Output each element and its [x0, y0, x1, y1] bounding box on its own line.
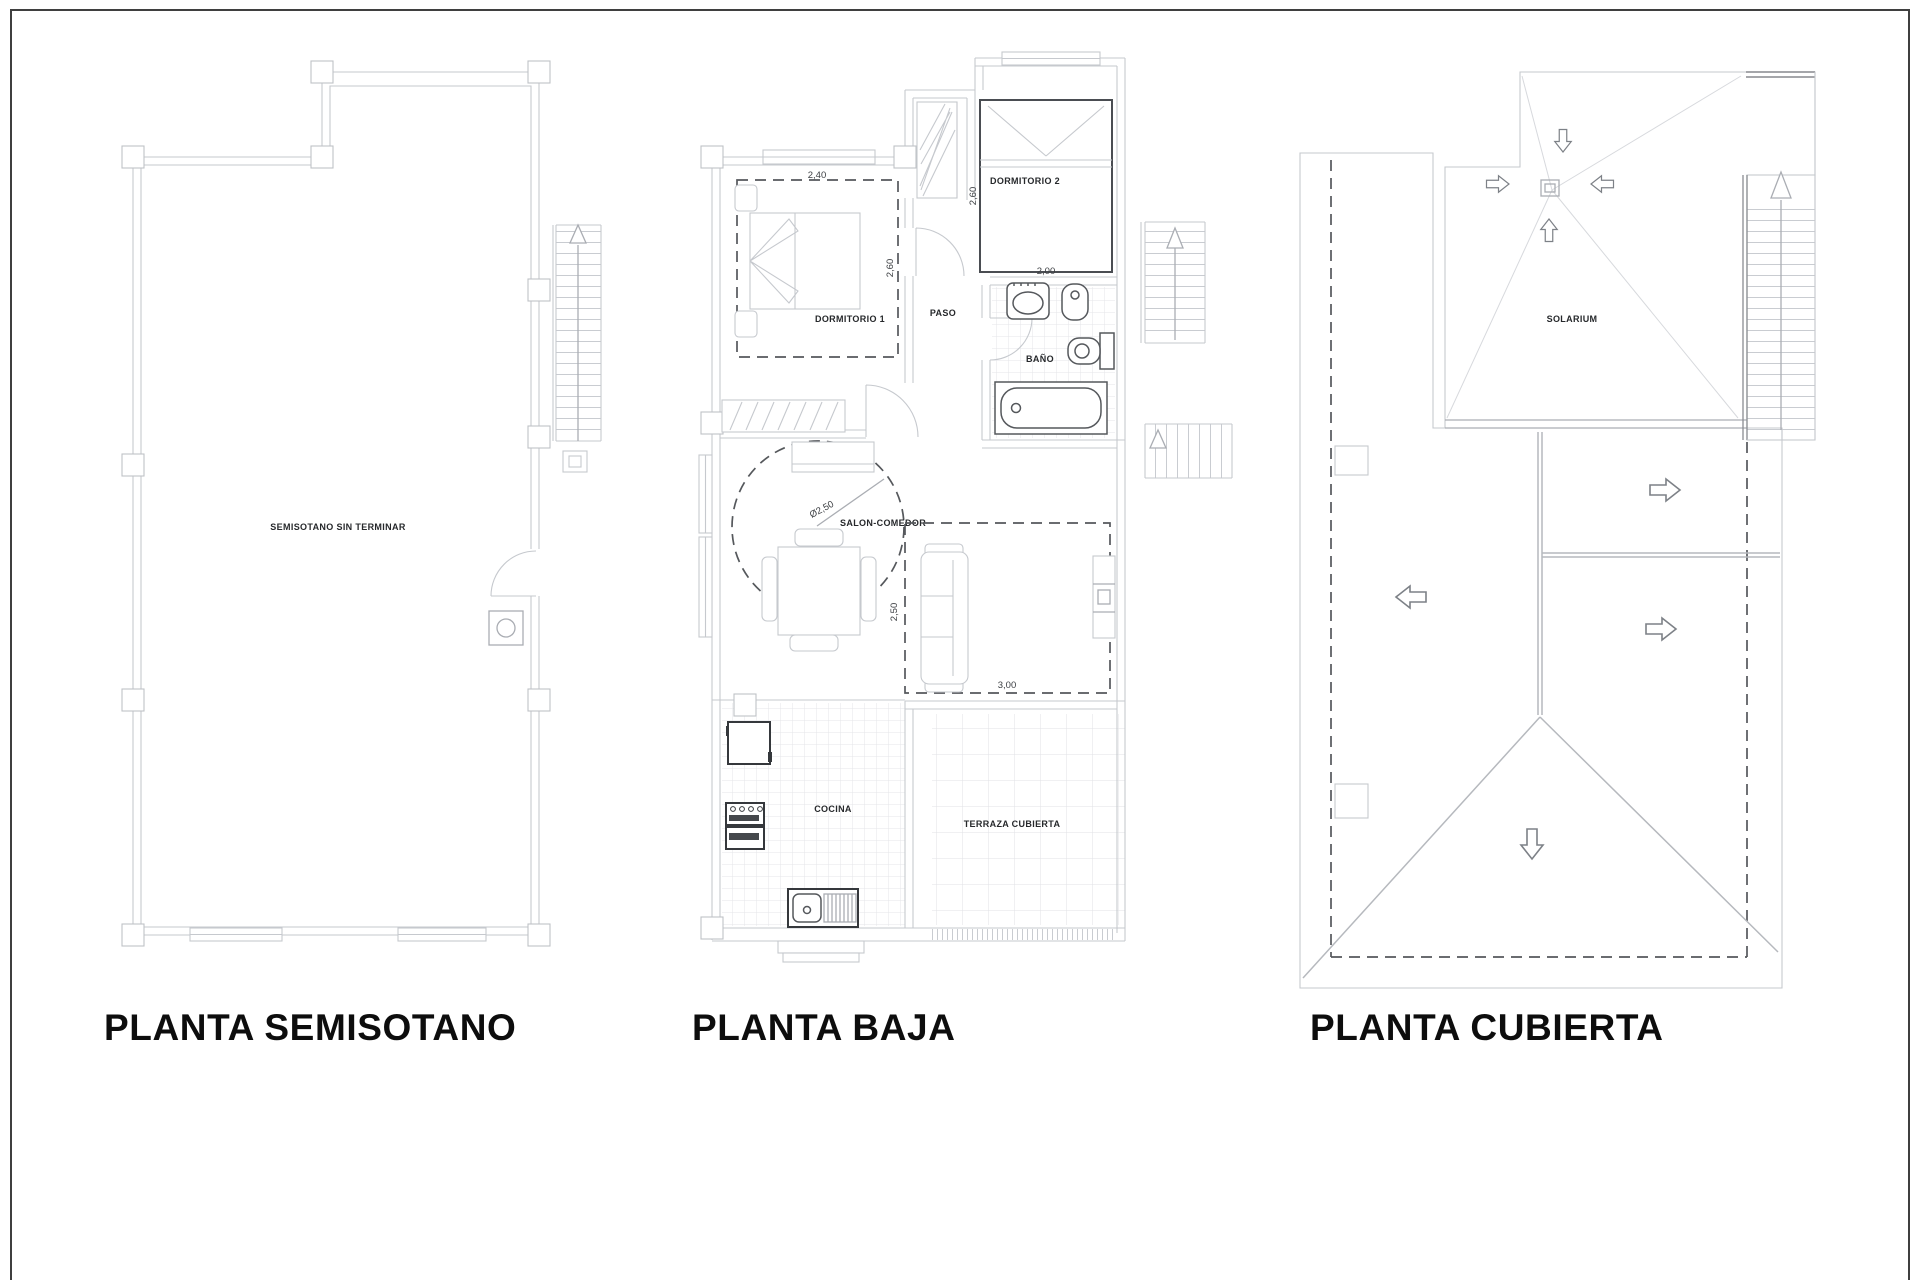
room-label-terraza: TERRAZA CUBIERTA — [964, 819, 1061, 829]
room-label-dormitorio1: DORMITORIO 1 — [815, 314, 885, 324]
floorplan-canvas: SEMISOTANO SIN TERMINAR — [0, 0, 1920, 1280]
door-salon — [866, 385, 918, 437]
dim-salon-diameter: Ø2,50 — [808, 499, 836, 521]
chimney — [1335, 446, 1368, 475]
basement-door — [491, 549, 541, 596]
room-label-dormitorio2: DORMITORIO 2 — [990, 176, 1060, 186]
door-dorm1 — [916, 228, 964, 276]
plan-semisotano: SEMISOTANO SIN TERMINAR — [122, 61, 601, 946]
room-label-semisotano: SEMISOTANO SIN TERMINAR — [270, 522, 406, 532]
terrace-threshold — [930, 929, 1117, 940]
bed2 — [980, 100, 1112, 272]
chimney — [1335, 784, 1368, 818]
pillars — [122, 61, 550, 946]
bidet — [1062, 284, 1088, 320]
sofa — [921, 552, 968, 684]
wardrobe — [917, 102, 957, 198]
plan-title-semisotano: PLANTA SEMISOTANO — [104, 1007, 516, 1048]
boiler — [489, 611, 523, 645]
nightstand — [735, 311, 757, 337]
sitting-area: 2,50 3,00 — [889, 523, 1115, 693]
chair — [762, 557, 777, 621]
plan-title-baja: PLANTA BAJA — [692, 1007, 956, 1048]
dim-dorm1-width: 2,40 — [808, 170, 827, 181]
drain-arrows — [1487, 130, 1614, 242]
shaft-symbol — [563, 451, 587, 472]
chair — [790, 635, 838, 651]
chair — [861, 557, 876, 621]
dormitorio1: 2,40 2,60 DORMITORIO 1 — [735, 170, 898, 357]
plan-cubierta: SOLARIUM — [1300, 72, 1815, 988]
plan-title-cubierta: PLANTA CUBIERTA — [1310, 1007, 1664, 1048]
plan-baja: 2,40 2,60 DORMITORIO 1 2,60 DORMITORIO 2… — [699, 52, 1232, 962]
ridge-lines — [1303, 432, 1780, 978]
drawing-sheet: SEMISOTANO SIN TERMINAR — [0, 0, 1920, 1280]
dormitorio2: 2,60 DORMITORIO 2 2,00 — [968, 100, 1112, 277]
room-label-paso: PASO — [930, 308, 956, 318]
dim-dorm2-width: 2,00 — [1037, 266, 1056, 277]
roof-stair — [1743, 72, 1815, 440]
dining-table — [778, 547, 860, 635]
plan-titles: PLANTA SEMISOTANO PLANTA BAJA PLANTA CUB… — [104, 1007, 1664, 1048]
fridge — [728, 722, 770, 764]
room-label-bano: BAÑO — [1026, 354, 1054, 364]
stair-up-arrow — [1771, 172, 1791, 198]
basement-stair — [553, 225, 601, 472]
dim-estar-width: 3,00 — [998, 680, 1017, 691]
dim-dorm2-depth: 2,60 — [968, 187, 979, 206]
sideboard — [792, 442, 874, 472]
roof-tiles — [1300, 153, 1782, 988]
room-label-solarium: SOLARIUM — [1547, 314, 1598, 324]
nightstand — [735, 185, 757, 211]
stove — [726, 803, 764, 825]
toilet-tank — [1100, 333, 1114, 369]
exterior-stairs — [1141, 222, 1232, 478]
eave-lines — [1331, 160, 1747, 957]
dim-estar-depth: 2,50 — [889, 603, 900, 622]
dim-dorm1-depth: 2,60 — [885, 259, 896, 278]
bed1 — [750, 213, 860, 309]
room-label-cocina: COCINA — [814, 804, 852, 814]
chair — [795, 529, 843, 546]
closet — [722, 400, 845, 432]
tv-unit — [1093, 556, 1115, 638]
